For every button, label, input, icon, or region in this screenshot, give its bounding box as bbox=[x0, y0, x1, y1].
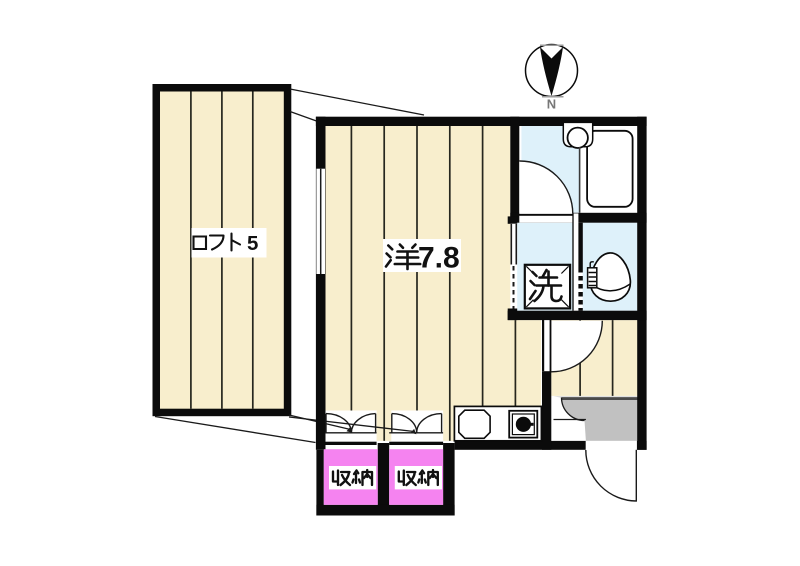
svg-text:N: N bbox=[547, 97, 556, 112]
svg-text:5: 5 bbox=[247, 232, 258, 255]
svg-text:7.8: 7.8 bbox=[418, 242, 460, 275]
